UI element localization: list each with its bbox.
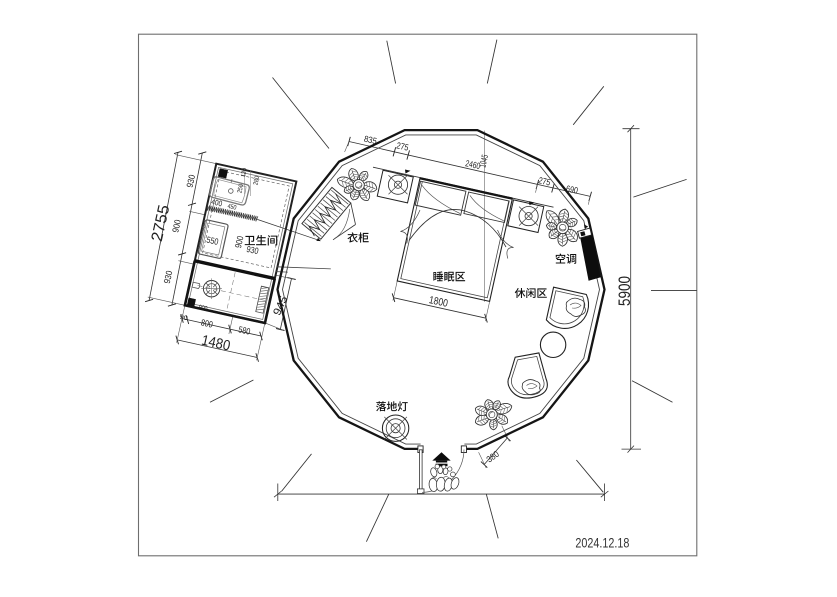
svg-text:2024.12.18: 2024.12.18 (575, 534, 629, 550)
svg-text:5900: 5900 (615, 276, 634, 306)
